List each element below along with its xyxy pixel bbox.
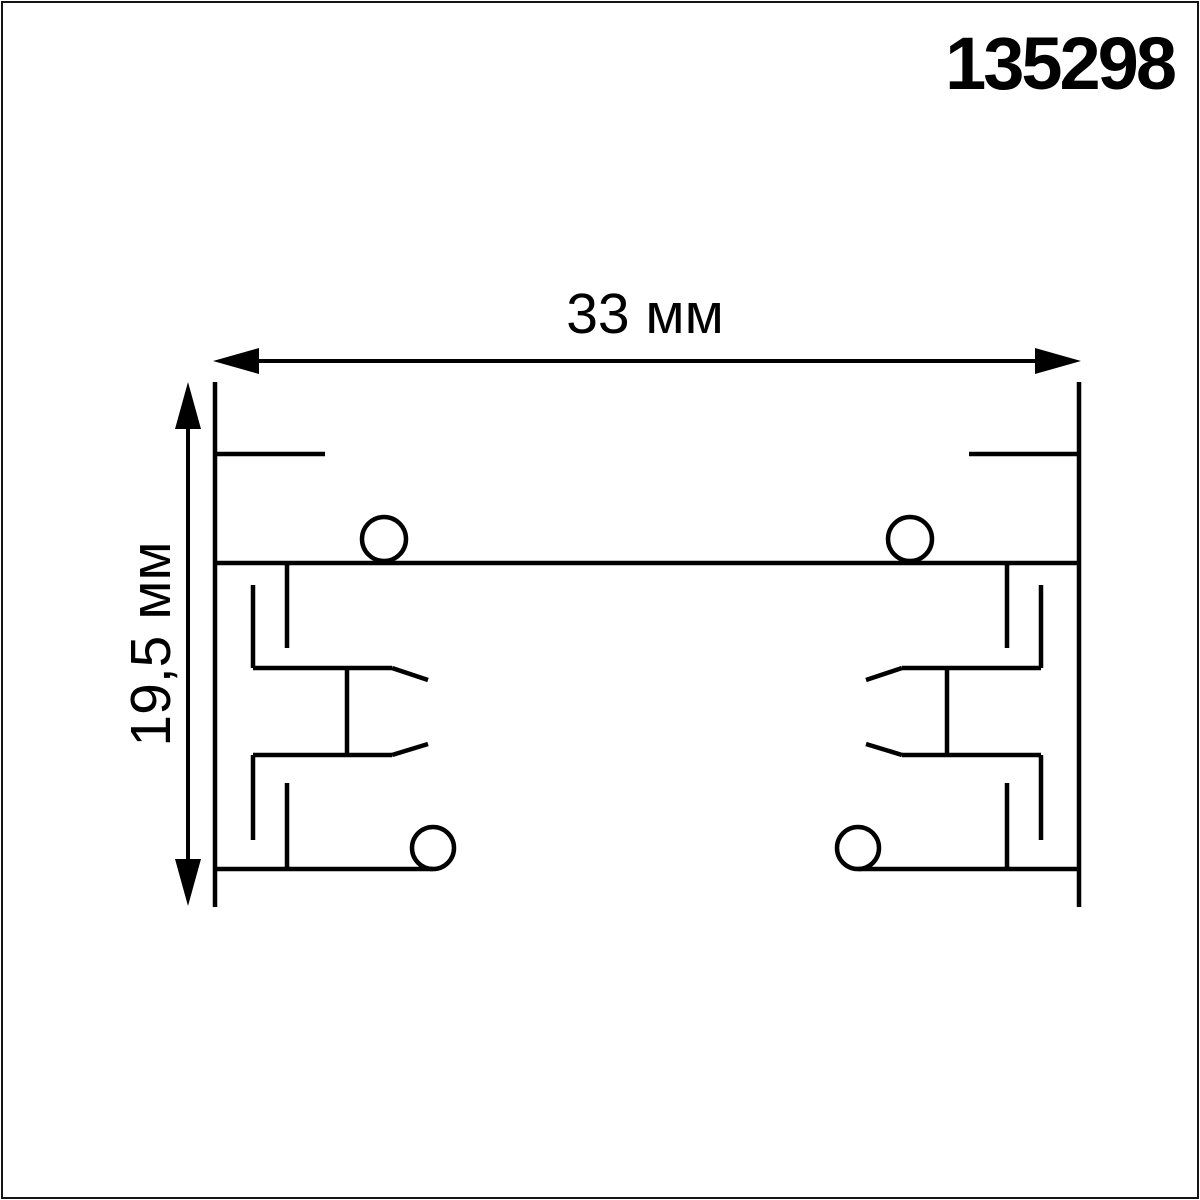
drawing-page: 33 мм 19,5 мм 135298: [0, 0, 1200, 1200]
profile-line: [392, 668, 428, 680]
conductor-circle: [837, 827, 879, 869]
article-number: 135298: [945, 22, 1175, 105]
conductor-circle: [412, 827, 454, 869]
profile-line: [866, 744, 902, 755]
dimension-lines-group: [188, 361, 1035, 859]
profile-line: [866, 668, 902, 680]
conductor-circles-group: [362, 517, 932, 869]
dimension-arrowhead: [213, 348, 259, 374]
conductor-circle: [362, 517, 406, 561]
height-dimension-label: 19,5 мм: [119, 541, 183, 746]
dimension-arrowheads-group: [175, 348, 1081, 906]
profile-outline-group: [215, 382, 1079, 907]
width-dimension-label: 33 мм: [566, 282, 724, 346]
profile-drawing: 33 мм 19,5 мм 135298: [0, 0, 1200, 1200]
dimension-arrowhead: [1035, 348, 1081, 374]
dimension-arrowhead: [175, 382, 201, 429]
conductor-circle: [888, 517, 932, 561]
profile-line: [392, 744, 428, 755]
dimension-arrowhead: [175, 859, 201, 906]
